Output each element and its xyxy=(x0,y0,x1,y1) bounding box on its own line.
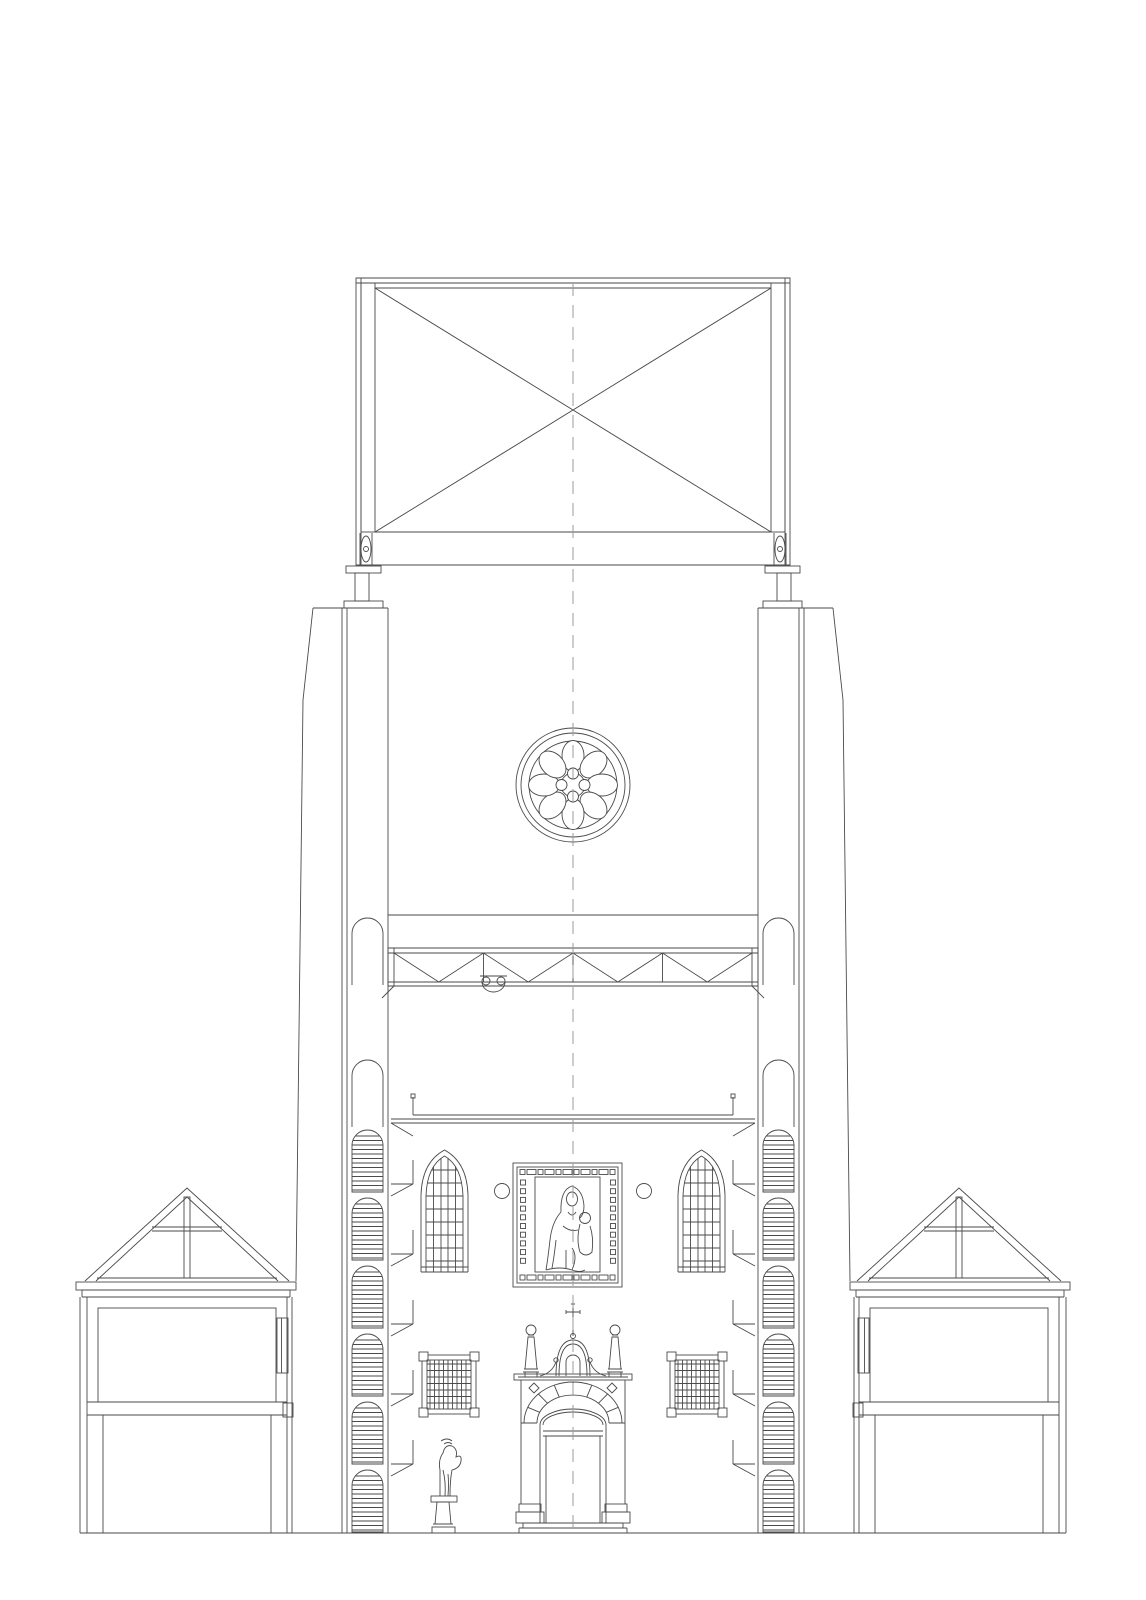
lattice-grille-left xyxy=(419,1352,479,1417)
pulley-left-icon xyxy=(360,533,372,565)
statue-on-column xyxy=(431,1439,461,1533)
wall-brackets-left xyxy=(391,1160,413,1476)
madonna-and-child-figure xyxy=(546,1186,593,1272)
gothic-window-left xyxy=(421,1150,468,1272)
bearing-pedestal-left xyxy=(344,566,383,608)
lattice-grille-right xyxy=(667,1352,727,1417)
tower-wall-right-outer xyxy=(799,608,804,1533)
obelisk-right xyxy=(607,1325,623,1377)
icon-panel xyxy=(535,1177,600,1272)
side-building-right xyxy=(850,1188,1070,1533)
truss-niche-right xyxy=(763,918,794,985)
buttress-right xyxy=(833,608,850,1281)
consecration-circle-left xyxy=(495,1184,510,1199)
altarpiece-icon xyxy=(513,1163,622,1287)
wall-brackets-right xyxy=(733,1160,755,1476)
tower-wall-left-outer xyxy=(342,608,347,1533)
x-brace xyxy=(375,288,771,532)
pulley-right-icon xyxy=(774,533,786,565)
buttress-left xyxy=(296,608,313,1281)
statue-halo xyxy=(441,1439,452,1444)
spiral-stair-left xyxy=(352,1060,383,1532)
side-building-left xyxy=(76,1188,296,1533)
gothic-window-right xyxy=(678,1150,725,1272)
obelisk-left xyxy=(523,1325,539,1377)
statue-figure xyxy=(439,1446,461,1496)
architectural-section-drawing xyxy=(0,0,1146,1600)
frame-border-cells xyxy=(520,1170,616,1281)
truss-pulley-detail xyxy=(480,976,507,992)
drawing-sheet xyxy=(0,0,1146,1600)
spiral-stair-right xyxy=(763,1060,794,1532)
consecration-circle-right xyxy=(637,1184,652,1199)
bearing-pedestal-right xyxy=(763,566,802,608)
truss-niche-left xyxy=(352,918,383,985)
